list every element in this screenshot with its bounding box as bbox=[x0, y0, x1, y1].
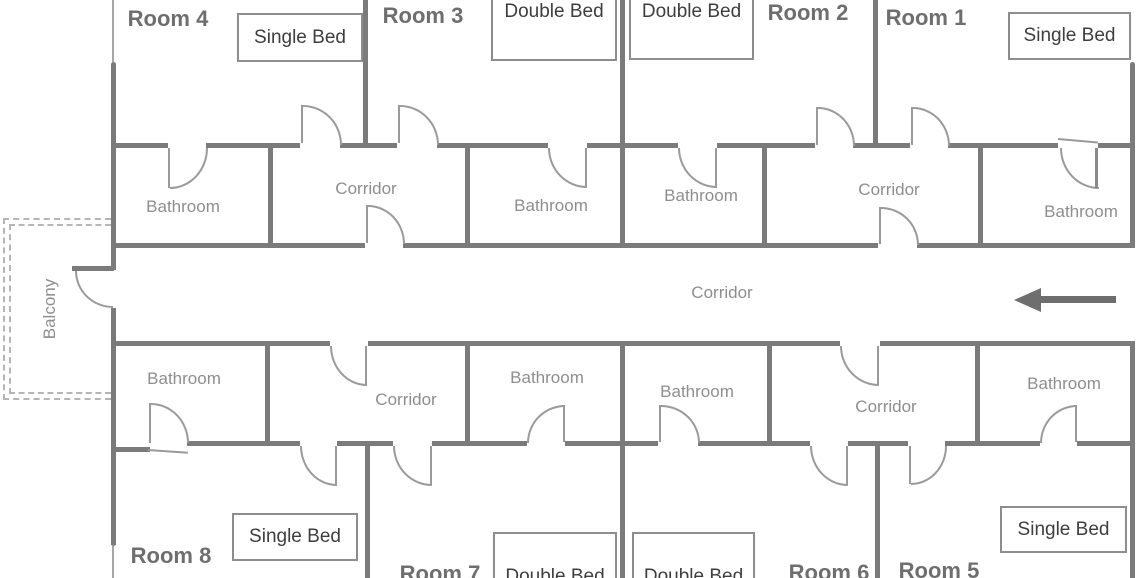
wall bbox=[403, 243, 878, 248]
wall bbox=[112, 546, 114, 578]
wall bbox=[978, 143, 983, 248]
balcony-railing-inner bbox=[9, 224, 111, 394]
balcony-label: Balcony bbox=[40, 279, 60, 339]
wall bbox=[1130, 62, 1135, 248]
door-arc bbox=[300, 446, 337, 486]
wall bbox=[432, 441, 527, 446]
wall bbox=[853, 143, 910, 148]
bed-box-room-7: Double Bed bbox=[493, 532, 617, 578]
door-arc bbox=[151, 403, 189, 443]
wall bbox=[565, 441, 658, 446]
door-arc bbox=[1040, 405, 1077, 443]
bed-label: Double Bed bbox=[505, 566, 604, 578]
bathroom-label-room1: Bathroom bbox=[1044, 202, 1118, 222]
wall bbox=[767, 341, 772, 446]
wall bbox=[1098, 143, 1135, 148]
wall bbox=[111, 447, 150, 452]
wall bbox=[620, 341, 625, 578]
bed-label: Single Bed bbox=[254, 27, 346, 49]
room-2-label: Room 2 bbox=[768, 0, 849, 26]
wall bbox=[206, 143, 300, 148]
room-8-label: Room 8 bbox=[131, 543, 212, 569]
door-arc bbox=[170, 148, 208, 189]
bed-label: Double Bed bbox=[644, 566, 743, 578]
wall bbox=[437, 143, 548, 148]
wall bbox=[111, 143, 168, 148]
bed-box-room-6: Double Bed bbox=[632, 532, 755, 578]
door-leaf bbox=[148, 449, 188, 454]
room-3-label: Room 3 bbox=[383, 3, 464, 29]
bed-box-room-5: Single Bed bbox=[1000, 506, 1127, 553]
door-arc bbox=[330, 346, 367, 386]
wall bbox=[1077, 441, 1135, 446]
wall bbox=[587, 143, 678, 148]
wall bbox=[363, 0, 368, 148]
wall bbox=[268, 143, 273, 248]
corridor-label-upper-right: Corridor bbox=[858, 180, 919, 200]
wall bbox=[945, 441, 1040, 446]
bed-label: Double Bed bbox=[504, 1, 603, 23]
wall bbox=[111, 341, 330, 346]
wall bbox=[1130, 343, 1135, 578]
bed-label: Single Bed bbox=[249, 526, 341, 548]
bed-label: Single Bed bbox=[1018, 519, 1110, 541]
wall bbox=[112, 0, 114, 62]
wall bbox=[948, 143, 1058, 148]
door-arc bbox=[548, 148, 587, 188]
door-arc bbox=[810, 446, 848, 486]
wall bbox=[111, 243, 365, 248]
door-arc bbox=[818, 107, 855, 146]
bathroom-label-room4: Bathroom bbox=[146, 197, 220, 217]
wall bbox=[620, 0, 625, 248]
bathroom-label-room3: Bathroom bbox=[514, 196, 588, 216]
wall bbox=[762, 143, 767, 248]
bathroom-label-room2: Bathroom bbox=[664, 186, 738, 206]
door-stop bbox=[1095, 148, 1098, 188]
wall bbox=[875, 441, 880, 578]
corridor-label-lower-left: Corridor bbox=[375, 390, 436, 410]
wall bbox=[111, 62, 116, 270]
door-arc bbox=[393, 446, 432, 486]
wall bbox=[698, 441, 810, 446]
wall bbox=[975, 341, 980, 446]
bed-box-room-8: Single Bed bbox=[232, 513, 358, 561]
wall bbox=[187, 441, 300, 446]
door-arc bbox=[527, 405, 565, 443]
door-arc bbox=[368, 205, 405, 244]
wall bbox=[340, 143, 397, 148]
door-arc bbox=[1060, 148, 1099, 189]
room-4-label: Room 4 bbox=[128, 6, 209, 32]
door-leaf bbox=[1058, 138, 1098, 143]
room-1-label: Room 1 bbox=[886, 5, 967, 31]
door-arc bbox=[303, 105, 342, 145]
wall bbox=[365, 441, 370, 578]
hotel-floor-plan: Single Bed Double Bed Double Bed Single … bbox=[0, 0, 1139, 578]
wall bbox=[917, 243, 1135, 248]
door-arc bbox=[881, 207, 919, 245]
door-arc bbox=[678, 148, 717, 188]
wall bbox=[873, 0, 878, 148]
door-arc bbox=[840, 346, 879, 386]
wall bbox=[465, 341, 470, 446]
wall bbox=[880, 341, 1135, 346]
room-6-label: Room 6 bbox=[789, 560, 870, 578]
bed-box-room-4: Single Bed bbox=[237, 13, 363, 62]
bed-label: Double Bed bbox=[642, 1, 741, 23]
bathroom-label-room7: Bathroom bbox=[510, 368, 584, 388]
door-arc bbox=[661, 405, 700, 443]
bed-box-room-1: Single Bed bbox=[1008, 12, 1131, 60]
door-arc bbox=[400, 105, 439, 145]
wall bbox=[265, 341, 270, 446]
left-arrow-head bbox=[1014, 288, 1041, 312]
door-arc bbox=[913, 107, 950, 146]
room-5-label: Room 5 bbox=[899, 558, 980, 578]
bed-label: Single Bed bbox=[1024, 25, 1116, 47]
left-arrow-shaft bbox=[1038, 296, 1116, 303]
bathroom-label-room6: Bathroom bbox=[660, 382, 734, 402]
bathroom-label-room8: Bathroom bbox=[147, 369, 221, 389]
corridor-label-lower-right: Corridor bbox=[855, 397, 916, 417]
bathroom-label-room5: Bathroom bbox=[1027, 374, 1101, 394]
wall bbox=[465, 143, 470, 248]
main-corridor-label: Corridor bbox=[691, 283, 752, 303]
room-7-label: Room 7 bbox=[400, 561, 481, 578]
bed-box-room-2: Double Bed bbox=[629, 0, 754, 60]
bed-box-room-3: Double Bed bbox=[491, 0, 617, 61]
door-arc bbox=[911, 446, 947, 485]
corridor-label-upper-left: Corridor bbox=[335, 179, 396, 199]
